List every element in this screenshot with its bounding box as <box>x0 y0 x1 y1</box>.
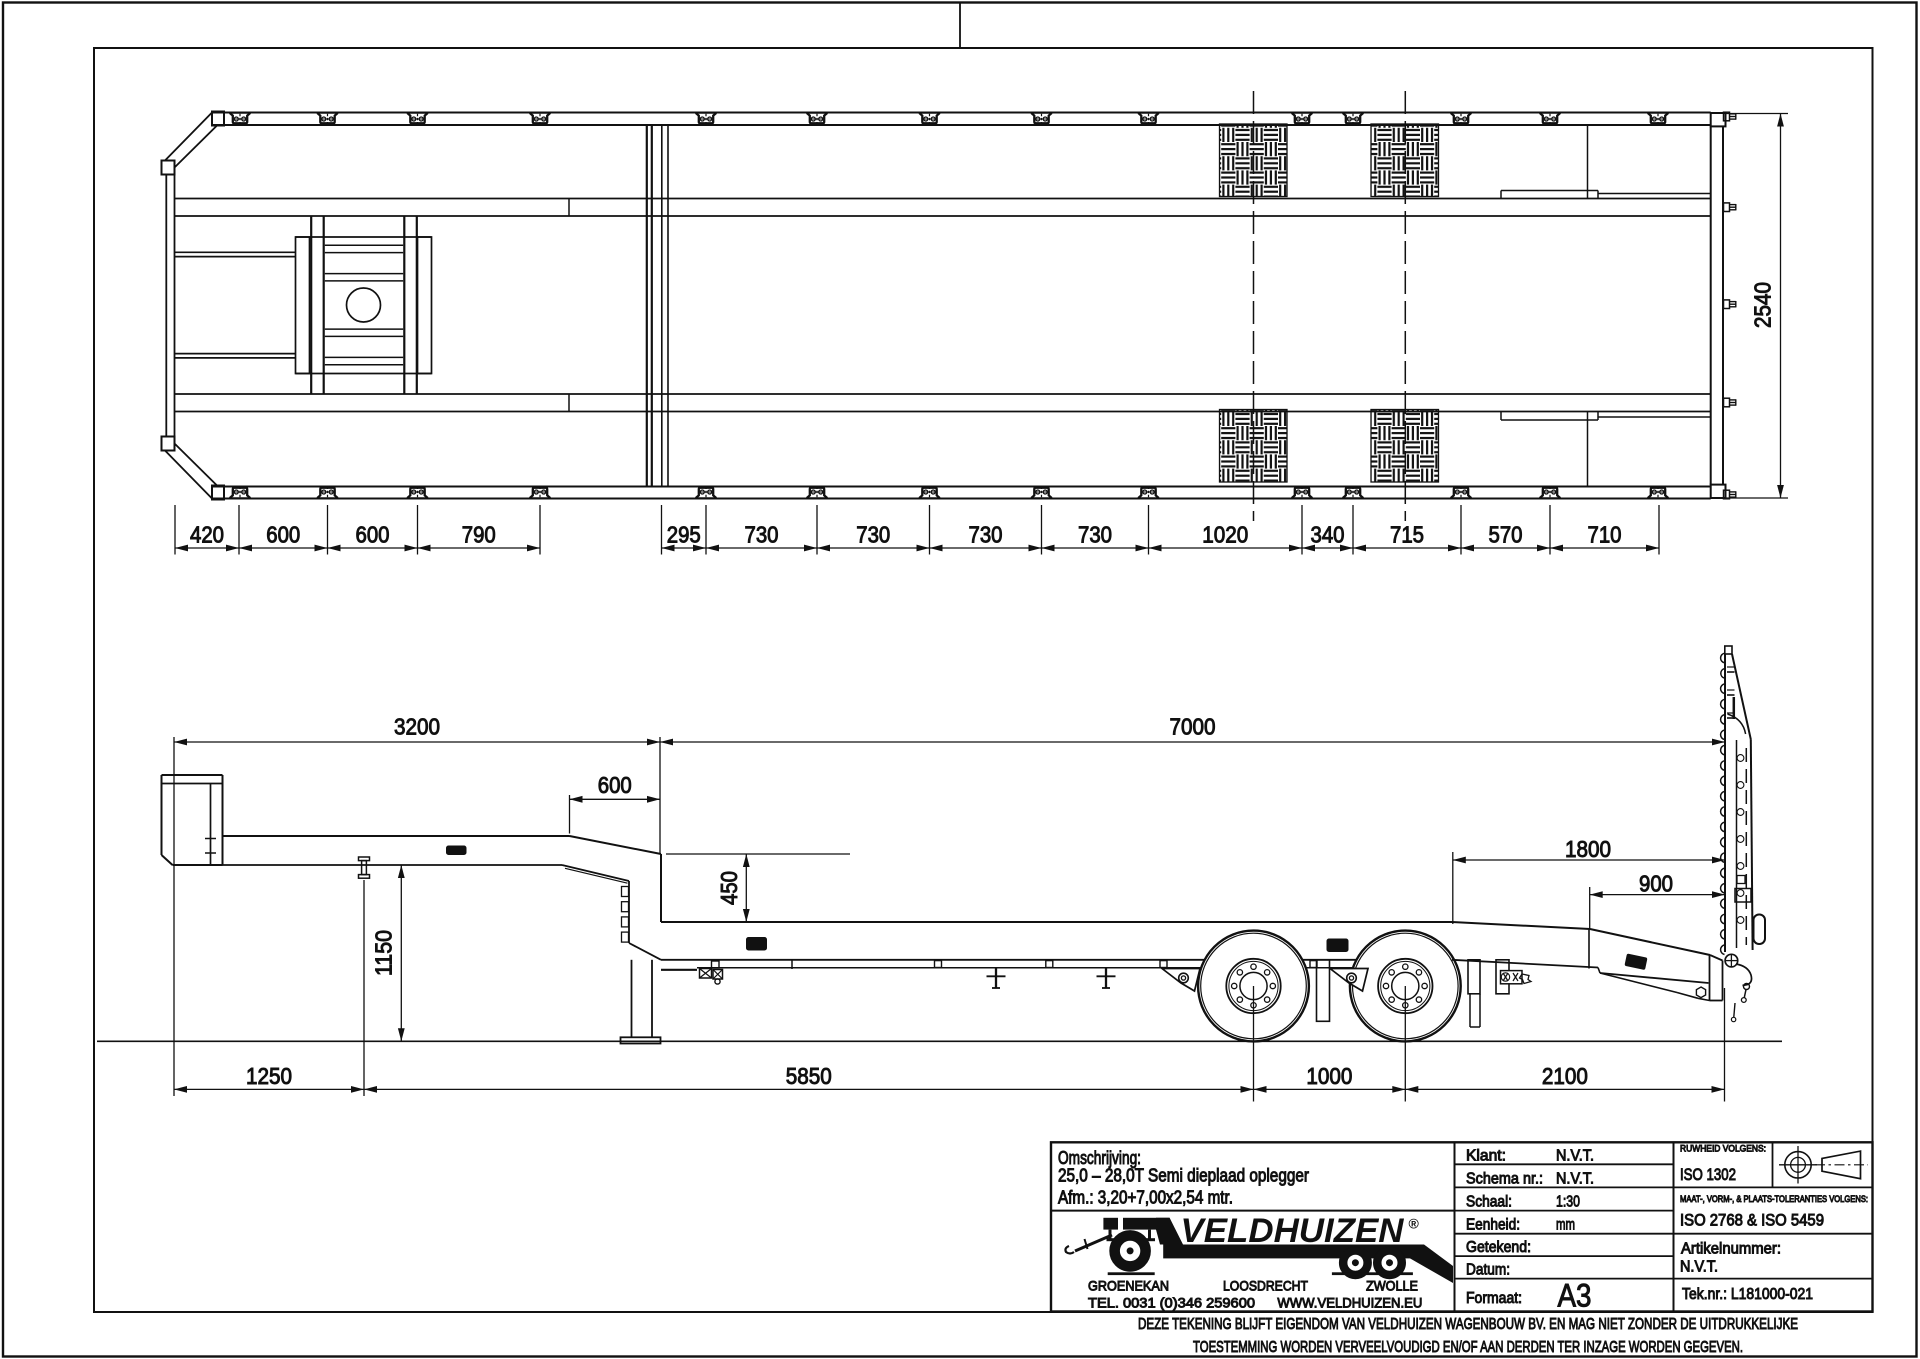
svg-text:570: 570 <box>1489 522 1523 548</box>
svg-text:MAAT-, VORM-, & PLAATS-TOLERAN: MAAT-, VORM-, & PLAATS-TOLERANTIES VOLGE… <box>1680 1194 1868 1204</box>
svg-text:5850: 5850 <box>786 1063 832 1089</box>
svg-text:ISO 2768 & ISO 5459: ISO 2768 & ISO 5459 <box>1680 1212 1824 1230</box>
svg-text:Schaal:: Schaal: <box>1466 1194 1512 1211</box>
svg-text:Afm.: 3,20+7,00x2,54 mtr.: Afm.: 3,20+7,00x2,54 mtr. <box>1058 1188 1233 1208</box>
svg-text:A3: A3 <box>1558 1278 1592 1314</box>
svg-text:ISO 1302: ISO 1302 <box>1680 1166 1736 1184</box>
svg-text:Getekend:: Getekend: <box>1466 1239 1531 1256</box>
svg-text:730: 730 <box>1078 522 1112 548</box>
svg-text:Artikelnummer:: Artikelnummer: <box>1681 1240 1781 1257</box>
svg-text:340: 340 <box>1311 522 1345 548</box>
svg-text:730: 730 <box>969 522 1003 548</box>
svg-text:WWW.VELDHUIZEN.EU: WWW.VELDHUIZEN.EU <box>1277 1295 1422 1311</box>
svg-text:1:30: 1:30 <box>1556 1194 1580 1211</box>
svg-text:600: 600 <box>266 522 300 548</box>
svg-text:Eenheid:: Eenheid: <box>1466 1217 1520 1234</box>
svg-text:GROENEKAN: GROENEKAN <box>1088 1277 1169 1293</box>
svg-text:®: ® <box>1409 1216 1420 1232</box>
svg-text:Tek.nr.: L181000-021: Tek.nr.: L181000-021 <box>1682 1286 1813 1303</box>
svg-text:25,0 – 28,0T Semi dieplaad opl: 25,0 – 28,0T Semi dieplaad oplegger <box>1058 1166 1309 1186</box>
svg-text:1020: 1020 <box>1202 522 1248 548</box>
svg-text:N.V.T.: N.V.T. <box>1556 1147 1594 1164</box>
svg-text:mm: mm <box>1556 1217 1575 1234</box>
svg-text:Formaat:: Formaat: <box>1466 1290 1522 1307</box>
svg-text:730: 730 <box>856 522 890 548</box>
svg-text:Klant:: Klant: <box>1466 1147 1506 1164</box>
svg-text:2540: 2540 <box>1750 282 1776 328</box>
svg-text:TEL. 0031 (0)346 259600: TEL. 0031 (0)346 259600 <box>1088 1295 1255 1311</box>
svg-text:710: 710 <box>1588 522 1622 548</box>
svg-text:DEZE TEKENING BLIJFT EIGENDOM: DEZE TEKENING BLIJFT EIGENDOM VAN VELDHU… <box>1138 1316 1798 1333</box>
svg-text:VELDHUIZEN: VELDHUIZEN <box>1181 1212 1405 1250</box>
svg-text:Schema nr.:: Schema nr.: <box>1466 1170 1543 1187</box>
svg-text:900: 900 <box>1639 871 1673 897</box>
svg-text:2100: 2100 <box>1542 1063 1588 1089</box>
svg-text:Datum:: Datum: <box>1466 1262 1510 1279</box>
svg-text:600: 600 <box>598 772 632 798</box>
svg-text:295: 295 <box>667 522 701 548</box>
svg-text:600: 600 <box>356 522 390 548</box>
svg-text:TOESTEMMING WORDEN VERVEELVOUD: TOESTEMMING WORDEN VERVEELVOUDIGD EN/OF … <box>1193 1339 1743 1356</box>
svg-text:N.V.T.: N.V.T. <box>1680 1258 1718 1275</box>
svg-text:730: 730 <box>745 522 779 548</box>
svg-text:790: 790 <box>462 522 496 548</box>
svg-text:RUWHEID VOLGENS:: RUWHEID VOLGENS: <box>1680 1144 1766 1155</box>
svg-text:ZWOLLE: ZWOLLE <box>1366 1277 1418 1293</box>
svg-text:420: 420 <box>190 522 224 548</box>
svg-text:7000: 7000 <box>1170 714 1216 740</box>
svg-text:1800: 1800 <box>1565 836 1611 862</box>
svg-text:1000: 1000 <box>1306 1063 1352 1089</box>
svg-text:450: 450 <box>716 871 742 905</box>
svg-text:LOOSDRECHT: LOOSDRECHT <box>1223 1277 1308 1293</box>
svg-text:3200: 3200 <box>394 714 440 740</box>
svg-text:1150: 1150 <box>371 930 397 976</box>
svg-text:715: 715 <box>1390 522 1424 548</box>
svg-text:1250: 1250 <box>246 1063 292 1089</box>
svg-text:N.V.T.: N.V.T. <box>1556 1170 1594 1187</box>
